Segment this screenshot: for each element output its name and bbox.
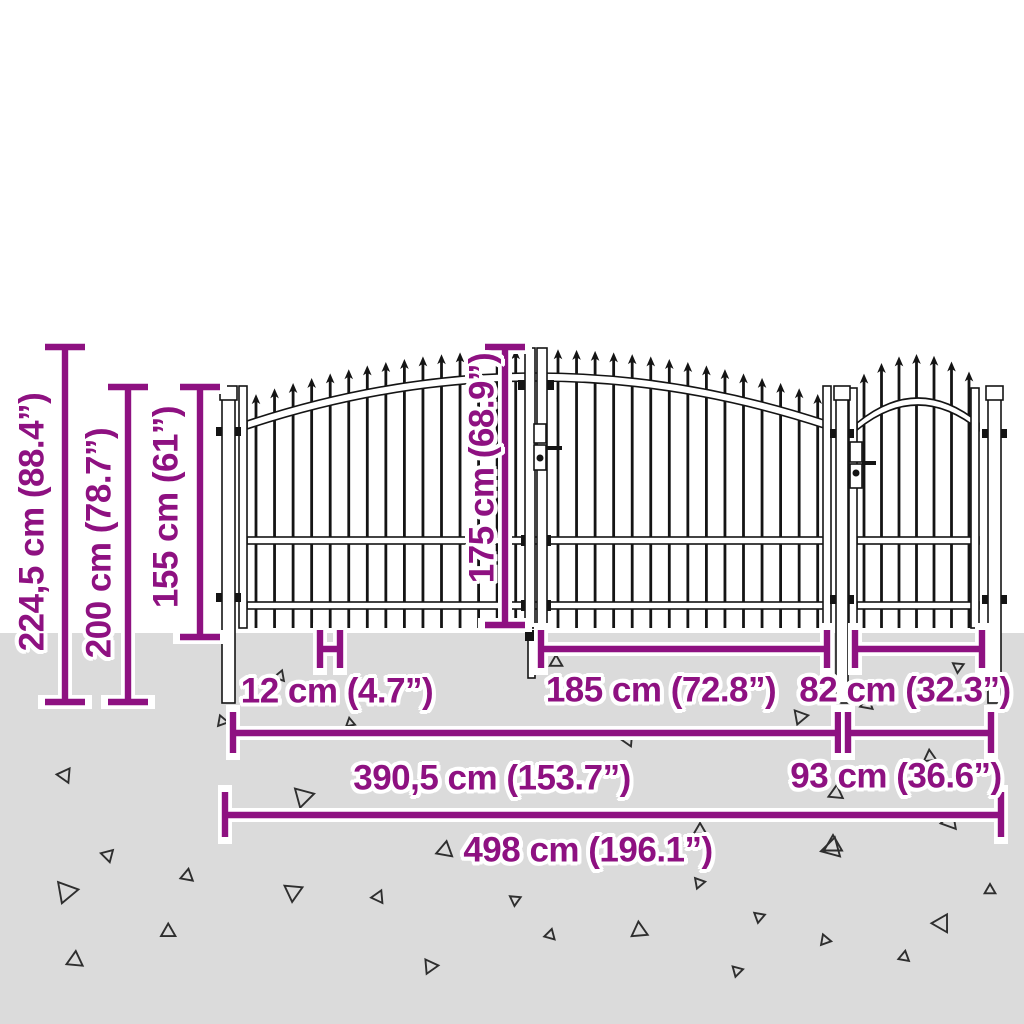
hinge-icon [1001, 429, 1007, 438]
wall-post-center [836, 399, 848, 703]
hinge-icon [830, 595, 836, 604]
double-gate-right-stile [823, 386, 831, 628]
single-gate-bottom-rail [857, 602, 979, 609]
wall-post-left [222, 399, 235, 703]
double-gate-center-stile-right [537, 348, 547, 628]
label-gate-leaf-width: 185 cm (72.8”) [546, 673, 776, 708]
label-picket-spacing: 12 cm (4.7”) [241, 674, 433, 709]
label-total-height: 224,5 cm (88.4”) [15, 393, 50, 652]
label-single-gate-total-width: 93 cm (36.6”) [790, 759, 1001, 794]
dim-fence-height [180, 387, 220, 637]
label-overall-width: 498 cm (196.1”) [463, 833, 712, 868]
wall-post-right [988, 399, 1001, 703]
label-gate-height: 175 cm (68.9”) [465, 353, 500, 583]
hinge-icon [216, 593, 222, 602]
hinge-icon [235, 427, 241, 436]
hinge-icon [1001, 595, 1007, 604]
single-gate-arch-rail [857, 398, 979, 430]
hinge-icon [848, 595, 854, 604]
single-gate-right-stile [971, 388, 979, 628]
label-single-gate-width: 82 cm (32.3”) [799, 673, 1010, 708]
wall-post-right-cap [986, 386, 1003, 400]
single-gate-middle-rail [857, 537, 979, 544]
product-dimension-diagram: 224,5 cm (88.4”) 200 cm (78.7”) 155 cm (… [0, 0, 1024, 1024]
label-post-height: 200 cm (78.7”) [82, 428, 117, 658]
hinge-icon [848, 429, 854, 438]
hinge-icon [830, 429, 836, 438]
hinge-icon [982, 595, 988, 604]
wall-post-center-cap [834, 386, 850, 400]
hinge-icon [216, 427, 222, 436]
label-fence-height: 155 cm (61”) [149, 406, 184, 608]
single-gate-left-stile [849, 388, 857, 628]
hinge-icon [235, 593, 241, 602]
double-gate-left-stile [239, 386, 247, 628]
double-gate-center-stile-left [525, 348, 535, 628]
hinge-icon [982, 429, 988, 438]
label-double-gate-width: 390,5 cm (153.7”) [353, 761, 631, 796]
